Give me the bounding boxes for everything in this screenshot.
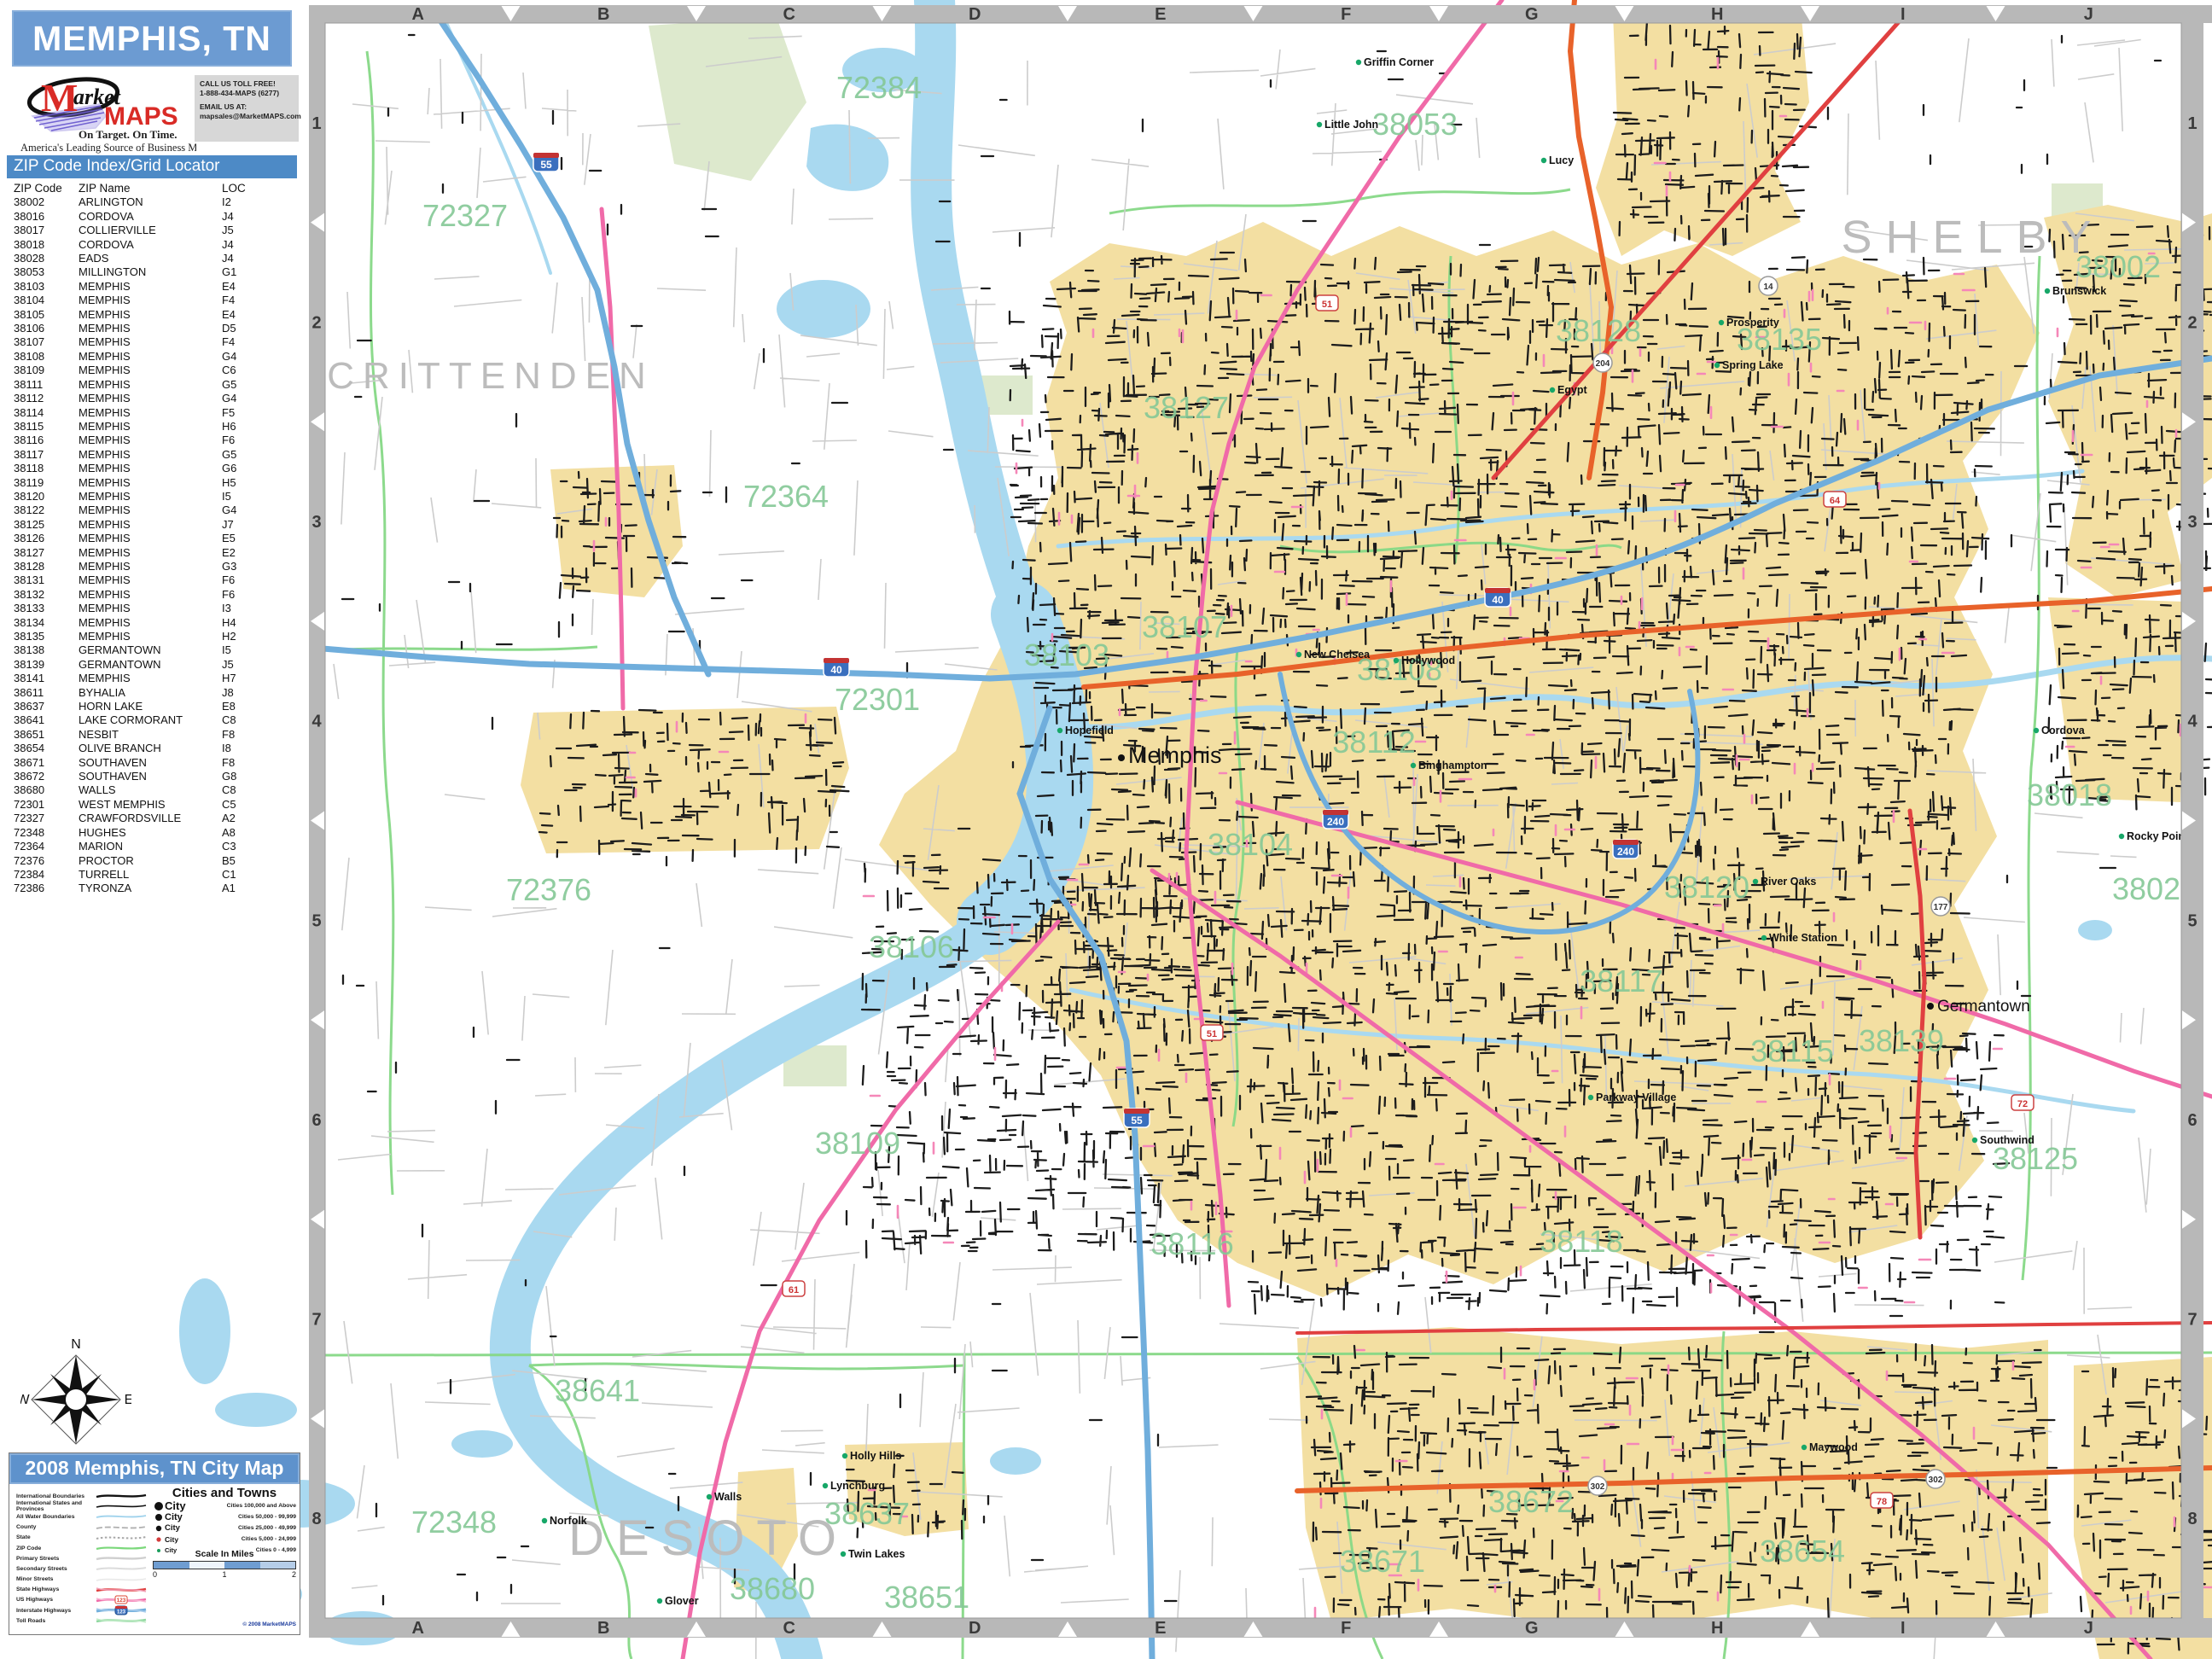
zip-code-label: 38107 (1142, 609, 1227, 644)
zip-code-label: 38115 (1750, 1033, 1833, 1068)
town-dot-icon (1550, 387, 1555, 393)
city-tier-desc: Cities 100,000 and Above (227, 1503, 296, 1509)
column-zip-code: ZIP Code (14, 182, 79, 195)
publisher-logo-block: M arket MAPS On Target. On Time. America… (17, 72, 299, 154)
zip-index-row: 38116MEMPHISF6 (14, 434, 297, 447)
zip-code-cell: 38131 (14, 573, 79, 587)
zip-code-cell: 38028 (14, 252, 79, 265)
loc-cell: F4 (222, 335, 273, 349)
zip-name-cell: ARLINGTON (79, 195, 222, 209)
town-dot-icon (841, 1551, 846, 1557)
loc-cell: J7 (222, 518, 273, 532)
zip-index-row: 38125MEMPHISJ7 (14, 518, 297, 532)
grid-col-label: C (783, 5, 795, 24)
interstate-shield-icon: 55 (533, 153, 559, 172)
grid-row-label: 4 (2187, 713, 2197, 731)
loc-cell: E4 (222, 308, 273, 322)
zip-code-cell: 38112 (14, 392, 79, 405)
zip-code-label: 72376 (506, 872, 591, 907)
cities-header: Cities and Towns (153, 1486, 296, 1500)
loc-cell: F8 (222, 756, 273, 770)
zip-index-row: 38016CORDOVAJ4 (14, 210, 297, 224)
loc-cell: I2 (222, 195, 273, 209)
zip-code-cell: 38018 (14, 238, 79, 252)
grid-col-label: E (1155, 1619, 1166, 1638)
zip-code-cell: 38117 (14, 448, 79, 462)
town-label: Griffin Corner (1364, 56, 1434, 68)
legend-line-sample-interstate: 123 (95, 1605, 148, 1615)
logo-tagline2: America's Leading Source of Business Map… (20, 142, 196, 154)
zip-name-cell: MEMPHIS (79, 392, 222, 405)
zip-index-row: 72364MARIONC3 (14, 840, 297, 853)
zip-name-cell: MARION (79, 840, 222, 853)
zip-index-row: 38135MEMPHISH2 (14, 630, 297, 643)
county-label: CRITTENDEN (327, 355, 655, 397)
zip-index-row: 72301WEST MEMPHISC5 (14, 798, 297, 812)
zip-code-label: 38109 (815, 1126, 900, 1161)
town-dot-icon (1714, 363, 1720, 368)
legend-item: Toll Roads (16, 1615, 151, 1626)
zip-index-row: 38126MEMPHISE5 (14, 532, 297, 545)
zip-name-cell: MEMPHIS (79, 406, 222, 420)
county-label: DESOTO (568, 1511, 848, 1566)
zip-index-table: ZIP Code ZIP Name LOC 38002ARLINGTONI238… (7, 178, 297, 896)
town-dot-icon (1802, 1445, 1807, 1450)
zip-name-cell: MEMPHIS (79, 616, 222, 630)
zip-index-row: 72348HUGHESA8 (14, 826, 297, 840)
loc-cell: G4 (222, 392, 273, 405)
grid-col-label: D (969, 1619, 981, 1638)
city-tier-label: City (165, 1512, 183, 1522)
legend-item: Secondary Streets (16, 1563, 151, 1574)
grid-row-label: 1 (311, 114, 321, 133)
zip-name-cell: MEMPHIS (79, 532, 222, 545)
contact-line4: mapsales@MarketMAPS.com (200, 112, 295, 121)
grid-col-label: H (1711, 1619, 1723, 1638)
zip-name-cell: HORN LAKE (79, 700, 222, 713)
grid-col-label: G (1525, 1619, 1539, 1638)
town-label: Little John (1324, 119, 1378, 131)
legend-item: State Highways (16, 1585, 151, 1595)
zip-code-cell: 38111 (14, 378, 79, 392)
legend-item-label: Toll Roads (16, 1618, 95, 1624)
zip-name-cell: WEST MEMPHIS (79, 798, 222, 812)
loc-cell: C8 (222, 783, 273, 797)
svg-text:177: 177 (1934, 903, 1948, 912)
loc-cell: C5 (222, 798, 273, 812)
town-dot-icon (657, 1598, 662, 1604)
grid-row-label: 3 (2187, 513, 2197, 532)
loc-cell: G3 (222, 560, 273, 573)
map-title-bar: MEMPHIS, TN (12, 10, 292, 67)
zip-index-row: 38672SOUTHAVENG8 (14, 770, 297, 783)
zip-index-row: 38641LAKE CORMORANTC8 (14, 713, 297, 727)
city-tier-desc: Cities 25,000 - 49,999 (238, 1525, 296, 1531)
zip-code-label: 38127 (1144, 390, 1229, 425)
zip-index-row: 38108MEMPHISG4 (14, 350, 297, 364)
zip-name-cell: MEMPHIS (79, 462, 222, 475)
loc-cell: H7 (222, 672, 273, 685)
svg-text:61: 61 (789, 1285, 799, 1295)
zip-code-label: 38106 (869, 929, 954, 964)
grid-col-label: E (1155, 5, 1166, 24)
grid-col-label: D (969, 5, 981, 24)
loc-cell: A2 (222, 812, 273, 825)
loc-cell: A1 (222, 882, 273, 895)
zip-index-row: 38637HORN LAKEE8 (14, 700, 297, 713)
zip-code-cell: 38134 (14, 616, 79, 630)
scale-tick-2: 2 (292, 1570, 296, 1579)
grid-row-label: 3 (311, 513, 321, 532)
grid-row-label: 8 (311, 1510, 321, 1528)
loc-cell: F6 (222, 588, 273, 602)
zip-name-cell: MEMPHIS (79, 434, 222, 447)
zip-code-cell: 38118 (14, 462, 79, 475)
zip-index-row: 38053MILLINGTONG1 (14, 265, 297, 279)
loc-cell: E5 (222, 532, 273, 545)
grid-col-label: F (1341, 1619, 1351, 1638)
zip-code-cell: 38135 (14, 630, 79, 643)
zip-name-cell: MEMPHIS (79, 672, 222, 685)
legend-item: Interstate Highways123 (16, 1605, 151, 1615)
legend-item-label: County (16, 1524, 95, 1530)
zip-code-label: 38680 (730, 1571, 815, 1606)
town-label: Brunswick (2052, 285, 2106, 297)
zip-name-cell: TYRONZA (79, 882, 222, 895)
cities-and-towns-legend: Cities and Towns CityCities 100,000 and … (153, 1486, 296, 1556)
zip-index-row: 38128MEMPHISG3 (14, 560, 297, 573)
zip-code-label: 72348 (411, 1505, 497, 1540)
zip-name-cell: MILLINGTON (79, 265, 222, 279)
zip-code-cell: 38107 (14, 335, 79, 349)
loc-cell: F5 (222, 406, 273, 420)
us-shield-icon: 61 (783, 1281, 805, 1296)
svg-text:78: 78 (1877, 1497, 1887, 1507)
cities-legend-row: CityCities 25,000 - 49,999 (153, 1522, 296, 1534)
zip-code-cell: 38141 (14, 672, 79, 685)
loc-cell: F8 (222, 728, 273, 742)
interstate-shield-icon: 40 (1485, 588, 1511, 607)
zip-index-row: 38122MEMPHISG4 (14, 504, 297, 517)
town-dot-icon (1761, 935, 1767, 940)
zip-code-cell: 72364 (14, 840, 79, 853)
zip-code-cell: 38671 (14, 756, 79, 770)
grid-col-label: B (597, 1619, 609, 1638)
town-dot-icon (1394, 658, 1399, 663)
grid-row-label: 2 (311, 313, 321, 332)
svg-text:302: 302 (1591, 1482, 1605, 1492)
loc-cell: J4 (222, 210, 273, 224)
zip-code-label: 38654 (1760, 1534, 1845, 1569)
marketmaps-logo: M arket MAPS On Target. On Time. America… (17, 72, 196, 154)
city-tier-label: City (165, 1535, 178, 1544)
zip-code-cell: 72384 (14, 868, 79, 882)
loc-cell: H6 (222, 420, 273, 434)
svg-text:14: 14 (1763, 282, 1773, 292)
city-tier-label: City (165, 1523, 180, 1533)
zip-index-row: 38018CORDOVAJ4 (14, 238, 297, 252)
grid-col-label: G (1525, 5, 1539, 24)
legend-item: All Water Boundaries (16, 1511, 151, 1522)
town-label: Norfolk (550, 1515, 587, 1527)
zip-code-cell: 38106 (14, 322, 79, 335)
zip-index-column-headers: ZIP Code ZIP Name LOC (14, 182, 297, 195)
zip-index-row: 38651NESBITF8 (14, 728, 297, 742)
zip-code-label: 38139 (1859, 1023, 1944, 1058)
zip-index-row: 38132MEMPHISF6 (14, 588, 297, 602)
zip-name-cell: MEMPHIS (79, 588, 222, 602)
zip-code-cell: 38611 (14, 686, 79, 700)
loc-cell: F6 (222, 434, 273, 447)
zip-index-row: 38141MEMPHISH7 (14, 672, 297, 685)
loc-cell: J4 (222, 238, 273, 252)
column-loc: LOC (222, 182, 273, 195)
logo-m: M (41, 76, 78, 119)
zip-name-cell: COLLIERVILLE (79, 224, 222, 237)
legend-item: US Highways123 (16, 1595, 151, 1605)
contact-line2: 1-888-434-MAPS (6277) (200, 89, 295, 98)
grid-col-label: I (1901, 5, 1906, 24)
county-label: SHELBY (1841, 212, 2104, 263)
contact-line1: CALL US TOLL FREE! (200, 79, 295, 89)
legend-line-sample-minor (95, 1575, 148, 1585)
zip-code-cell: 38133 (14, 602, 79, 615)
scale-bar-block: Scale In Miles 0 1 2 (153, 1549, 296, 1579)
legend-line-sample-water (95, 1511, 148, 1522)
zip-name-cell: SOUTHAVEN (79, 770, 222, 783)
us-shield-icon: 51 (1316, 295, 1338, 311)
town-label: Maywood (1809, 1441, 1858, 1453)
town-label: Prosperity (1726, 317, 1779, 329)
zip-index-row: 38120MEMPHISI5 (14, 490, 297, 504)
zip-name-cell: MEMPHIS (79, 420, 222, 434)
interstate-shield-icon: 55 (1124, 1109, 1150, 1127)
legend-line-sample-ushwy: 123 (95, 1595, 148, 1605)
svg-text:51: 51 (1207, 1029, 1217, 1039)
legend-line-sample-toll (95, 1615, 148, 1626)
zip-code-cell: 38126 (14, 532, 79, 545)
zip-name-cell: MEMPHIS (79, 602, 222, 615)
zip-index-row: 38002ARLINGTONI2 (14, 195, 297, 209)
grid-row-label: 5 (311, 911, 321, 930)
loc-cell: C8 (222, 713, 273, 727)
zip-code-cell: 38127 (14, 546, 79, 560)
grid-row-label: 2 (2187, 313, 2197, 332)
legend-line-sample-intl (95, 1491, 148, 1501)
zip-code-label: 38651 (884, 1580, 969, 1615)
svg-text:240: 240 (1327, 816, 1344, 828)
zip-code-cell: 38103 (14, 280, 79, 294)
grid-col-label: H (1711, 5, 1723, 24)
legend-line-sample-county (95, 1522, 148, 1533)
scale-tick-1: 1 (222, 1570, 226, 1579)
zip-name-cell: MEMPHIS (79, 350, 222, 364)
zip-code-label: 72384 (836, 70, 922, 105)
zip-index-row: 38109MEMPHISC6 (14, 364, 297, 377)
town-label: River Oaks (1761, 876, 1816, 888)
zip-index-row: 38114MEMPHISF5 (14, 406, 297, 420)
zip-name-cell: TURRELL (79, 868, 222, 882)
town-label: Parkway Village (1596, 1091, 1676, 1103)
legend-line-sample-statehwy (95, 1585, 148, 1595)
zip-code-label: 38112 (1332, 725, 1415, 760)
state-shield-icon: 302 (1588, 1476, 1607, 1495)
compass-w: W (20, 1393, 30, 1407)
loc-cell: G5 (222, 378, 273, 392)
zip-name-cell: MEMPHIS (79, 294, 222, 307)
loc-cell: E8 (222, 700, 273, 713)
compass-star (32, 1355, 120, 1444)
zip-index-row: 38104MEMPHISF4 (14, 294, 297, 307)
zip-code-cell: 38017 (14, 224, 79, 237)
zip-index-row: 38106MEMPHISD5 (14, 322, 297, 335)
zip-index-row: 38103MEMPHISE4 (14, 280, 297, 294)
zip-code-label: 38672 (1488, 1484, 1574, 1519)
town-dot-icon (707, 1494, 712, 1499)
zip-index-row: 38127MEMPHISE2 (14, 546, 297, 560)
town-label: Hopefield (1065, 725, 1114, 736)
zip-code-cell: 38002 (14, 195, 79, 209)
zip-code-cell: 38120 (14, 490, 79, 504)
compass-e: E (125, 1393, 131, 1407)
town-dot-icon (1541, 158, 1546, 163)
compass-rose: N S W E (20, 1314, 131, 1472)
zip-code-label: 38637 (824, 1496, 910, 1531)
zip-code-cell: 38105 (14, 308, 79, 322)
loc-cell: I8 (222, 742, 273, 755)
zip-name-cell: MEMPHIS (79, 335, 222, 349)
town-label: Cordova (2041, 725, 2086, 736)
svg-text:123: 123 (117, 1598, 126, 1604)
zip-code-cell: 38053 (14, 265, 79, 279)
zip-code-cell: 38104 (14, 294, 79, 307)
compass-n: N (71, 1337, 81, 1352)
zip-index-row: 38134MEMPHISH4 (14, 616, 297, 630)
city-tier-desc: Cities 50,000 - 99,999 (238, 1514, 296, 1520)
legend-item-label: State (16, 1534, 95, 1540)
loc-cell: G4 (222, 504, 273, 517)
zip-name-cell: OLIVE BRANCH (79, 742, 222, 755)
zip-name-cell: EADS (79, 252, 222, 265)
town-dot-icon (2045, 288, 2050, 294)
zip-index-row: 38112MEMPHISG4 (14, 392, 297, 405)
city-dot-icon (153, 1512, 165, 1522)
zip-code-cell: 38128 (14, 560, 79, 573)
zip-code-label: 38128 (1556, 313, 1641, 348)
zip-index-row: 72386TYRONZAA1 (14, 882, 297, 895)
us-shield-icon: 51 (1201, 1025, 1223, 1040)
svg-text:51: 51 (1322, 300, 1332, 310)
zip-name-cell: CORDOVA (79, 210, 222, 224)
zip-index-row: 38133MEMPHISI3 (14, 602, 297, 615)
state-shield-icon: 302 (1926, 1470, 1945, 1488)
zip-index-row: 38117MEMPHISG5 (14, 448, 297, 462)
loc-cell: E2 (222, 546, 273, 560)
zip-name-cell: MEMPHIS (79, 560, 222, 573)
zip-name-cell: BYHALIA (79, 686, 222, 700)
legend-body: International BoundariesInternational St… (9, 1484, 300, 1629)
legend-copyright: © 2008 MarketMAPS (242, 1621, 296, 1627)
loc-cell: B5 (222, 854, 273, 868)
zip-index-row: 38118MEMPHISG6 (14, 462, 297, 475)
city-tier-desc: Cities 5,000 - 24,999 (242, 1536, 296, 1542)
loc-cell: J4 (222, 252, 273, 265)
cities-legend-row: CityCities 50,000 - 99,999 (153, 1511, 296, 1522)
zip-index-row: 38138GERMANTOWNI5 (14, 643, 297, 657)
zip-code-label: 38120 (1664, 870, 1749, 905)
legend-item-label: International States and Provinces (16, 1500, 95, 1512)
town-dot-icon (1296, 652, 1301, 657)
town-dot-icon (2034, 728, 2039, 733)
zip-code-label: 38125 (1993, 1141, 2078, 1176)
loc-cell: I5 (222, 490, 273, 504)
zip-index-row: 38654OLIVE BRANCHI8 (14, 742, 297, 755)
zip-code-cell: 38122 (14, 504, 79, 517)
town-label: Holly Hills (850, 1450, 901, 1462)
zip-code-cell: 38016 (14, 210, 79, 224)
zip-name-cell: CORDOVA (79, 238, 222, 252)
grid-col-label: F (1341, 5, 1351, 24)
svg-text:55: 55 (1131, 1115, 1143, 1126)
town-dot-icon (542, 1518, 547, 1523)
interstate-shield-icon: 240 (1323, 810, 1348, 829)
loc-cell: F4 (222, 294, 273, 307)
zip-code-cell: 72376 (14, 854, 79, 868)
legend-item: ZIP Code (16, 1543, 151, 1553)
zip-code-cell: 72348 (14, 826, 79, 840)
zip-code-cell: 38139 (14, 658, 79, 672)
zip-name-cell: MEMPHIS (79, 546, 222, 560)
town-dot-icon (1356, 60, 1361, 65)
svg-text:40: 40 (830, 664, 842, 676)
town-dot-icon (2119, 834, 2124, 839)
zip-name-cell: WALLS (79, 783, 222, 797)
zip-index-row: 38131MEMPHISF6 (14, 573, 297, 587)
town-dot-icon (1057, 728, 1062, 733)
town-label: Egypt (1557, 384, 1588, 396)
zip-code-label: 38018 (2027, 777, 2112, 812)
town-label: Glover (665, 1595, 699, 1607)
zip-index-row: 72376PROCTORB5 (14, 854, 297, 868)
contact-line3: EMAIL US AT: (200, 102, 295, 112)
contact-box: CALL US TOLL FREE! 1-888-434-MAPS (6277)… (195, 75, 299, 142)
town-label: Spring Lake (1722, 359, 1784, 371)
logo-tagline1: On Target. On Time. (79, 128, 177, 141)
town-dot-icon (842, 1453, 847, 1458)
zip-name-cell: MEMPHIS (79, 504, 222, 517)
legend-line-sample-stateprov (95, 1501, 148, 1511)
legend-item-label: State Highways (16, 1586, 95, 1592)
town-label: Twin Lakes (848, 1548, 905, 1560)
loc-cell: F6 (222, 573, 273, 587)
state-shield-icon: 177 (1931, 897, 1950, 916)
grid-col-label: J (2084, 1619, 2093, 1638)
zip-code-label: 38002 (2075, 249, 2161, 284)
zip-code-label: 72327 (422, 198, 508, 233)
zip-name-cell: MEMPHIS (79, 378, 222, 392)
loc-cell: H4 (222, 616, 273, 630)
svg-text:55: 55 (540, 159, 552, 171)
grid-row-label: 6 (2187, 1111, 2197, 1130)
legend-item: State (16, 1533, 151, 1543)
loc-cell: G5 (222, 448, 273, 462)
legend-item-label: International Boundaries (16, 1493, 95, 1499)
zip-name-cell: NESBIT (79, 728, 222, 742)
zip-index-row: 38105MEMPHISE4 (14, 308, 297, 322)
zip-name-cell: GERMANTOWN (79, 658, 222, 672)
loc-cell: C3 (222, 840, 273, 853)
zip-code-label: 38117 (1580, 963, 1662, 998)
